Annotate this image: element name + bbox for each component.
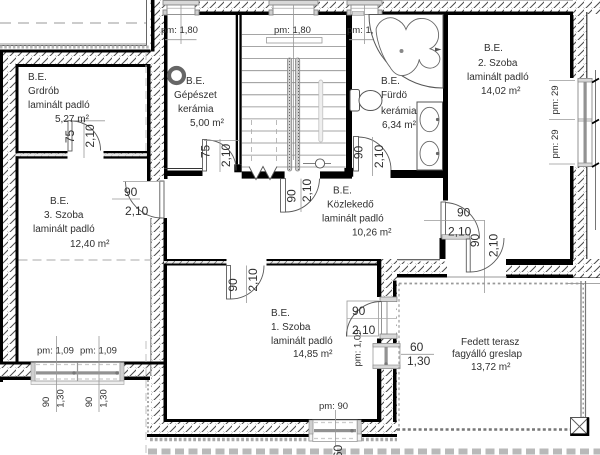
svg-text:2,10: 2,10 — [300, 178, 314, 202]
svg-text:3. Szoba: 3. Szoba — [44, 210, 84, 221]
svg-text:2,10: 2,10 — [487, 233, 501, 257]
svg-text:75: 75 — [63, 130, 77, 144]
svg-text:B.E.: B.E. — [28, 72, 47, 83]
svg-text:12,40 m²: 12,40 m² — [70, 239, 110, 250]
svg-text:90: 90 — [457, 206, 471, 220]
svg-text:90: 90 — [124, 185, 138, 199]
svg-text:6,34 m²: 6,34 m² — [382, 120, 417, 131]
svg-text:pm: 1,80: pm: 1,80 — [274, 25, 311, 36]
svg-text:90: 90 — [352, 304, 366, 318]
svg-text:Fürdö: Fürdö — [381, 90, 408, 101]
svg-text:2,10: 2,10 — [246, 268, 260, 292]
svg-text:14,85 m²: 14,85 m² — [293, 349, 333, 360]
svg-text:pm: 29: pm: 29 — [550, 85, 561, 114]
svg-text:pm: 90: pm: 90 — [319, 401, 348, 412]
svg-text:laminált padló: laminált padló — [322, 214, 384, 225]
svg-text:2,10: 2,10 — [83, 124, 97, 148]
svg-text:pm: 1,: pm: 1, — [347, 25, 373, 36]
svg-text:90: 90 — [84, 397, 95, 408]
svg-text:kerámia: kerámia — [178, 104, 214, 115]
svg-text:5,27 m²: 5,27 m² — [55, 114, 90, 125]
svg-text:90: 90 — [41, 397, 52, 408]
svg-text:2,10: 2,10 — [372, 144, 386, 168]
svg-text:Grdrób: Grdrób — [28, 86, 60, 97]
svg-text:90: 90 — [352, 146, 366, 160]
svg-text:pm: 1,09: pm: 1,09 — [80, 346, 117, 357]
svg-text:laminált padló: laminált padló — [33, 224, 95, 235]
svg-text:13,72 m²: 13,72 m² — [471, 362, 511, 373]
svg-text:kerámia: kerámia — [381, 106, 417, 117]
svg-text:5,00 m²: 5,00 m² — [190, 118, 225, 129]
svg-text:pm: 29: pm: 29 — [550, 129, 561, 158]
svg-text:1,30: 1,30 — [56, 389, 67, 408]
svg-text:60: 60 — [410, 340, 424, 354]
svg-text:laminált padló: laminált padló — [467, 72, 529, 83]
svg-text:B.E.: B.E. — [186, 76, 205, 87]
svg-text:10,26 m²: 10,26 m² — [352, 228, 392, 239]
svg-text:90: 90 — [226, 278, 240, 292]
svg-text:pm: 1,09: pm: 1,09 — [353, 330, 364, 367]
svg-text:1,30: 1,30 — [99, 389, 110, 408]
svg-text:B.E.: B.E. — [484, 43, 503, 54]
svg-text:1,30: 1,30 — [407, 354, 431, 368]
svg-text:Közlekedő: Közlekedő — [327, 200, 374, 211]
svg-text:B.E.: B.E. — [271, 308, 290, 319]
svg-text:pm: 1,80: pm: 1,80 — [161, 25, 198, 36]
svg-text:B.E.: B.E. — [333, 186, 352, 197]
svg-text:laminált padló: laminált padló — [271, 336, 333, 347]
svg-text:Gépészet: Gépészet — [174, 90, 217, 101]
svg-text:60: 60 — [331, 445, 345, 455]
svg-text:2,10: 2,10 — [219, 143, 233, 167]
svg-text:fagyálló greslap: fagyálló greslap — [452, 349, 522, 360]
svg-text:75: 75 — [199, 145, 213, 159]
svg-text:laminált padló: laminált padló — [28, 100, 90, 111]
svg-text:14,02 m²: 14,02 m² — [481, 86, 521, 97]
svg-text:90: 90 — [285, 189, 299, 203]
svg-text:1. Szoba: 1. Szoba — [271, 322, 311, 333]
svg-text:2,10: 2,10 — [125, 204, 149, 218]
svg-text:90: 90 — [468, 234, 482, 248]
svg-text:pm: 1,09: pm: 1,09 — [37, 346, 74, 357]
svg-text:B.E.: B.E. — [50, 196, 69, 207]
svg-text:B.E.: B.E. — [381, 76, 400, 87]
svg-text:2. Szoba: 2. Szoba — [478, 58, 518, 69]
svg-text:Fedett terasz: Fedett terasz — [461, 337, 519, 348]
